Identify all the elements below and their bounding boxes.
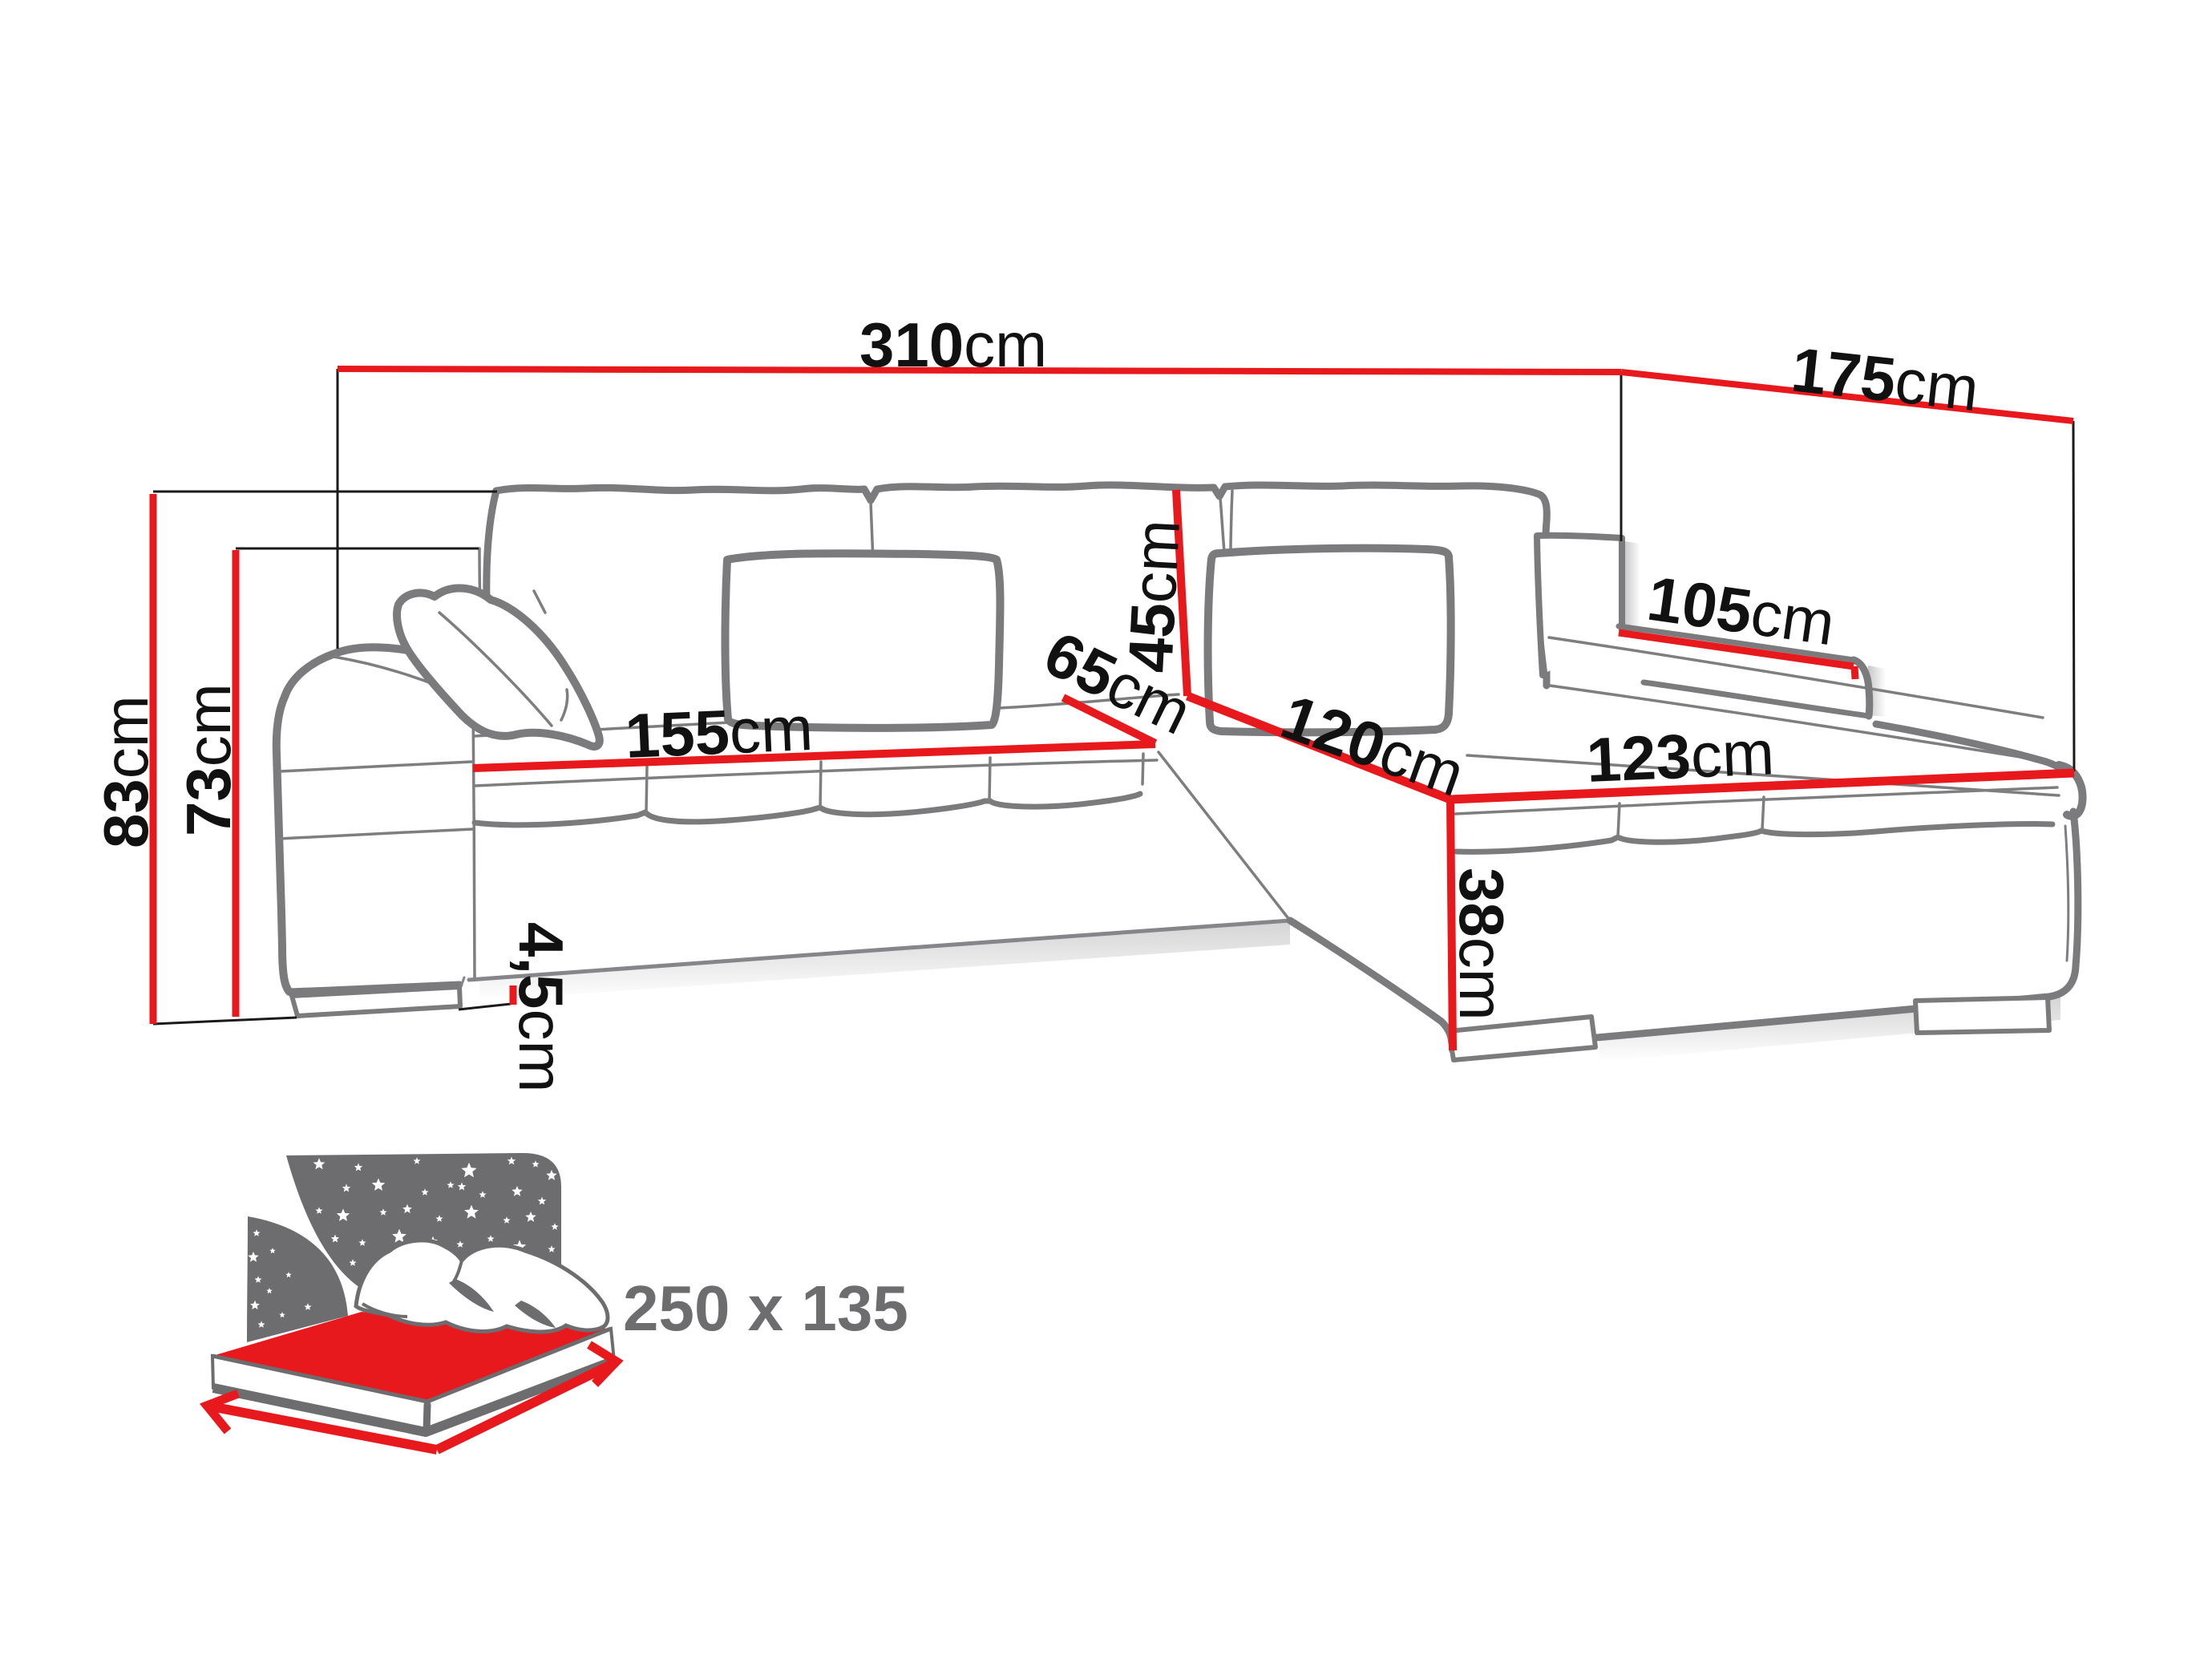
svg-text:155cm: 155cm: [624, 693, 815, 771]
svg-text:250 x 135: 250 x 135: [623, 1273, 908, 1344]
svg-text:38cm: 38cm: [1446, 868, 1517, 1021]
svg-text:83cm: 83cm: [91, 695, 161, 848]
svg-text:73cm: 73cm: [173, 683, 244, 836]
svg-text:4,5cm: 4,5cm: [506, 922, 576, 1092]
svg-text:45cm: 45cm: [1114, 518, 1193, 674]
svg-text:310cm: 310cm: [859, 310, 1047, 380]
svg-text:123cm: 123cm: [1585, 717, 1776, 795]
